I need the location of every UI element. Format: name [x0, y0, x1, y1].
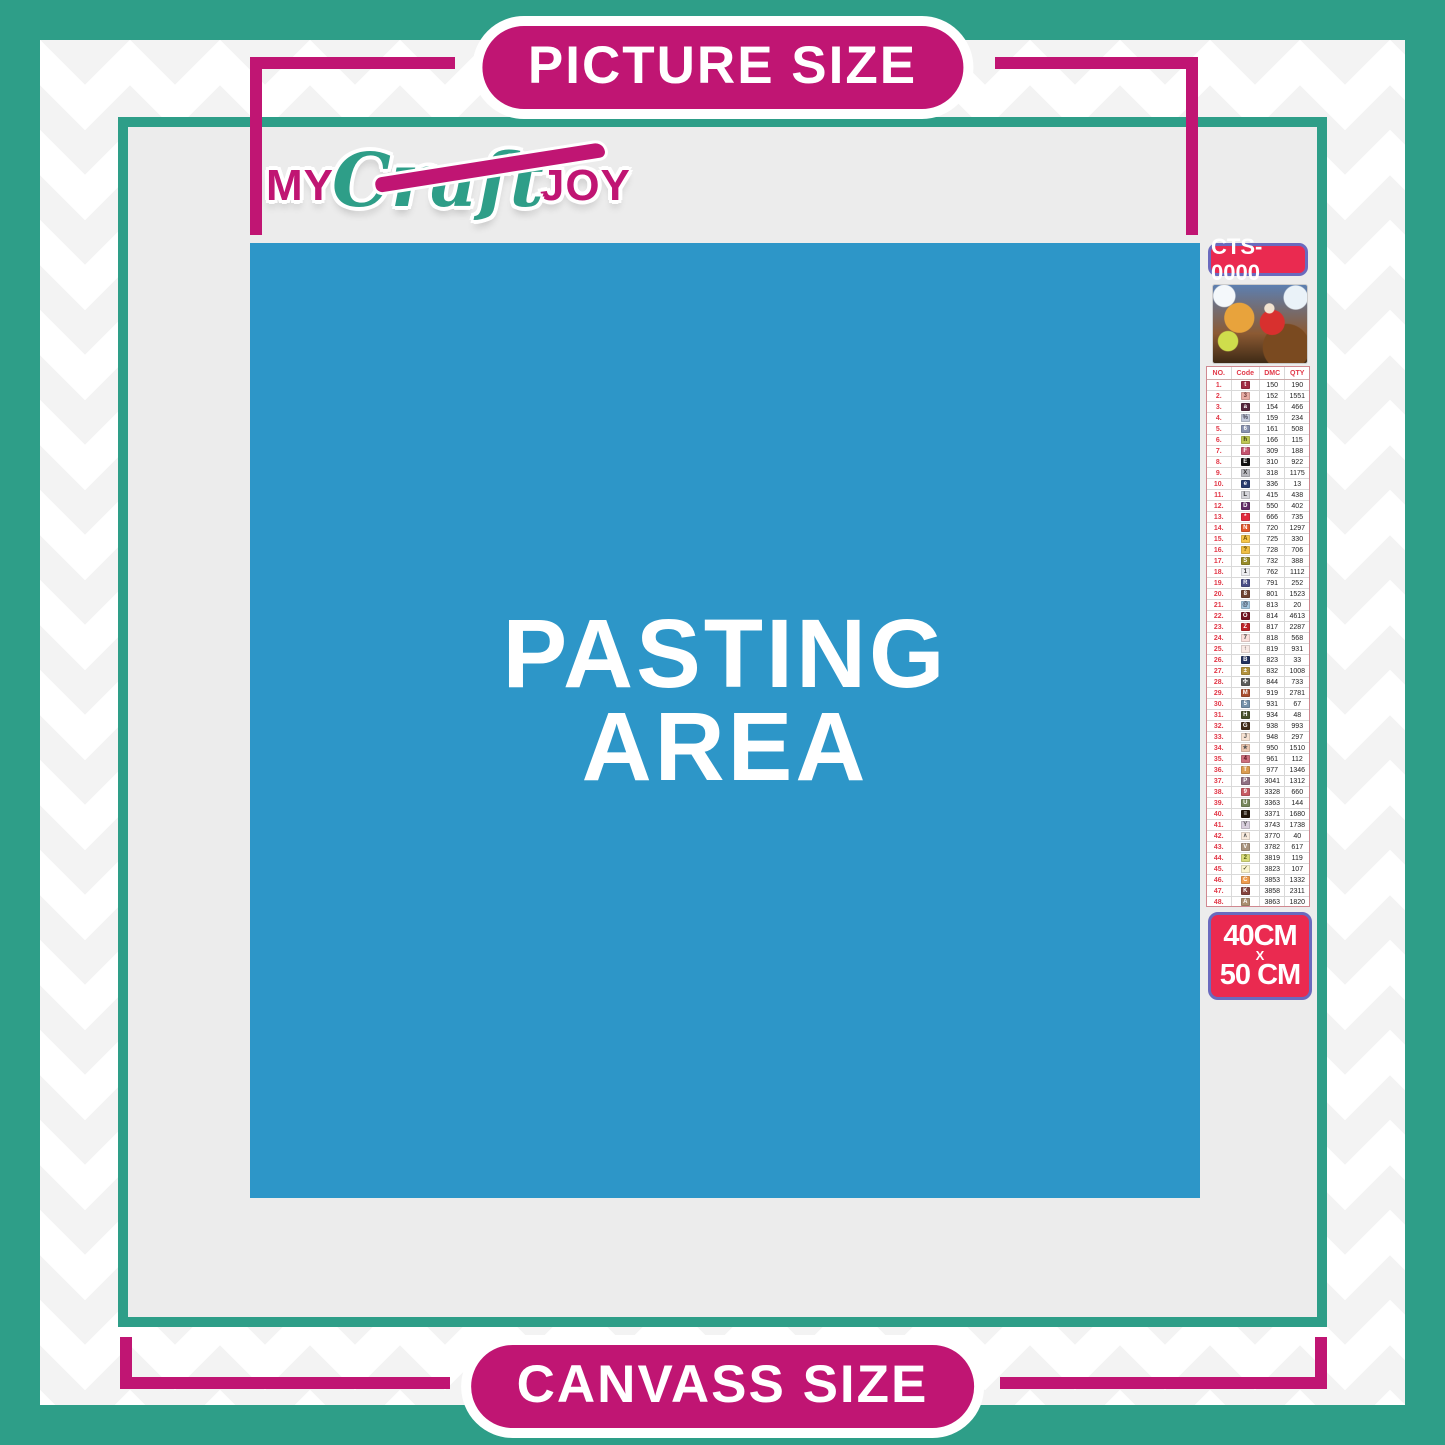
legend-cell-no: 38.: [1207, 787, 1232, 797]
color-chip: ?: [1241, 546, 1250, 554]
legend-header-code: Code: [1232, 367, 1260, 379]
legend-cell-code: %: [1232, 413, 1260, 423]
color-chip: O: [1241, 612, 1250, 620]
legend-cell-code: J: [1232, 732, 1260, 742]
legend-cell-code: ✣: [1232, 677, 1260, 687]
sku-text: CTS-0000: [1211, 234, 1305, 286]
legend-cell-no: 21.: [1207, 600, 1232, 610]
legend-row: 30. 5 931 67: [1207, 699, 1309, 710]
color-chip: U: [1241, 799, 1250, 807]
legend-header-no: NO.: [1207, 367, 1232, 379]
legend-cell-no: 37.: [1207, 776, 1232, 786]
legend-cell-dmc: 318: [1260, 468, 1286, 478]
color-chip: D: [1241, 502, 1250, 510]
legend-cell-code: 9: [1232, 787, 1260, 797]
color-chip: 3: [1241, 392, 1250, 400]
legend-cell-qty: 1112: [1285, 567, 1309, 577]
color-chip: G: [1241, 722, 1250, 730]
legend-cell-code: U: [1232, 798, 1260, 808]
color-chip: 4: [1241, 755, 1250, 763]
legend-cell-dmc: 152: [1260, 391, 1286, 401]
legend-cell-no: 34.: [1207, 743, 1232, 753]
legend-cell-code: ?: [1232, 545, 1260, 555]
legend-row: 43. V 3782 617: [1207, 842, 1309, 853]
legend-row: 41. Y 3743 1738: [1207, 820, 1309, 831]
legend-cell-code: N: [1232, 523, 1260, 533]
legend-cell-dmc: 720: [1260, 523, 1286, 533]
legend-row: 12. D 550 402: [1207, 501, 1309, 512]
legend-cell-qty: 1680: [1285, 809, 1309, 819]
legend-cell-code: R: [1232, 578, 1260, 588]
legend-cell-dmc: 666: [1260, 512, 1286, 522]
legend-cell-dmc: 725: [1260, 534, 1286, 544]
legend-cell-no: 20.: [1207, 589, 1232, 599]
legend-cell-dmc: 159: [1260, 413, 1286, 423]
legend-cell-qty: 119: [1285, 853, 1309, 863]
legend-row: 3. a 154 466: [1207, 402, 1309, 413]
legend-cell-qty: 33: [1285, 655, 1309, 665]
product-size-diagram: { "header": { "picture_size_label": "PIC…: [0, 0, 1445, 1445]
legend-cell-dmc: 3371: [1260, 809, 1286, 819]
legend-cell-code: 8: [1232, 589, 1260, 599]
color-chip: T: [1241, 766, 1250, 774]
color-chip: F: [1241, 447, 1250, 455]
canvass-size-pill: CANVASS SIZE: [461, 1335, 985, 1438]
color-chip: J: [1241, 733, 1250, 741]
legend-row: 5. 6 161 508: [1207, 424, 1309, 435]
legend-row: 47. K 3858 2311: [1207, 886, 1309, 897]
legend-row: 33. J 948 297: [1207, 732, 1309, 743]
legend-cell-code: K: [1232, 886, 1260, 896]
legend-table: NO. Code DMC QTY 1. t 150 190 2. 3 152 1…: [1206, 366, 1310, 907]
legend-row: 38. 9 3328 660: [1207, 787, 1309, 798]
legend-cell-qty: 297: [1285, 732, 1309, 742]
color-chip: E: [1241, 458, 1250, 466]
legend-cell-qty: 190: [1285, 380, 1309, 390]
legend-cell-no: 13.: [1207, 512, 1232, 522]
color-chip: ∧: [1241, 832, 1250, 840]
color-chip: 9: [1241, 788, 1250, 796]
legend-row: 48. A 3863 1820: [1207, 897, 1309, 907]
legend-row: 23. Z 817 2287: [1207, 622, 1309, 633]
legend-row: 31. H 934 48: [1207, 710, 1309, 721]
legend-row: 8. E 310 922: [1207, 457, 1309, 468]
legend-cell-dmc: 161: [1260, 424, 1286, 434]
canvass-size-bracket-right-stub: [1315, 1337, 1327, 1389]
legend-cell-dmc: 415: [1260, 490, 1286, 500]
legend-cell-code: O: [1232, 611, 1260, 621]
legend-cell-no: 32.: [1207, 721, 1232, 731]
legend-cell-dmc: 166: [1260, 435, 1286, 445]
legend-cell-code: L: [1232, 490, 1260, 500]
legend-row: 9. X 318 1175: [1207, 468, 1309, 479]
legend-cell-dmc: 336: [1260, 479, 1286, 489]
legend-cell-dmc: 931: [1260, 699, 1286, 709]
canvass-size-bracket-right-line: [1000, 1377, 1327, 1389]
legend-cell-no: 22.: [1207, 611, 1232, 621]
legend-cell-qty: 1175: [1285, 468, 1309, 478]
legend-row: 17. S 732 388: [1207, 556, 1309, 567]
color-chip: B: [1241, 656, 1250, 664]
legend-cell-no: 16.: [1207, 545, 1232, 555]
pasting-area: PASTING AREA: [250, 243, 1200, 1198]
legend-cell-no: 44.: [1207, 853, 1232, 863]
picture-size-label: PICTURE SIZE: [528, 36, 917, 95]
legend-cell-code: V: [1232, 842, 1260, 852]
legend-cell-code: B: [1232, 655, 1260, 665]
color-chip: A: [1241, 898, 1250, 906]
color-chip: R: [1241, 579, 1250, 587]
color-chip: C: [1241, 876, 1250, 884]
legend-cell-code: F: [1232, 446, 1260, 456]
color-chip: P: [1241, 777, 1250, 785]
legend-row: 18. 1 762 1112: [1207, 567, 1309, 578]
legend-cell-no: 48.: [1207, 897, 1232, 907]
legend-cell-qty: 4613: [1285, 611, 1309, 621]
legend-cell-no: 47.: [1207, 886, 1232, 896]
legend-cell-code: ✓: [1232, 864, 1260, 874]
color-chip: ±: [1241, 667, 1250, 675]
color-chip: 6: [1241, 425, 1250, 433]
legend-cell-code: X: [1232, 468, 1260, 478]
legend-cell-dmc: 154: [1260, 402, 1286, 412]
legend-cell-qty: 234: [1285, 413, 1309, 423]
legend-cell-no: 4.: [1207, 413, 1232, 423]
color-chip: h: [1241, 436, 1250, 444]
color-chip: L: [1241, 491, 1250, 499]
legend-cell-qty: 13: [1285, 479, 1309, 489]
legend-cell-no: 40.: [1207, 809, 1232, 819]
legend-row: 45. ✓ 3823 107: [1207, 864, 1309, 875]
legend-cell-dmc: 823: [1260, 655, 1286, 665]
legend-row: 32. G 938 993: [1207, 721, 1309, 732]
legend-cell-no: 6.: [1207, 435, 1232, 445]
legend-row: 24. 7 818 568: [1207, 633, 1309, 644]
legend-cell-code: G: [1232, 721, 1260, 731]
legend-cell-qty: 115: [1285, 435, 1309, 445]
legend-cell-qty: 112: [1285, 754, 1309, 764]
color-chip: a: [1241, 403, 1250, 411]
color-chip: M: [1241, 689, 1250, 697]
logo-word-my: MY: [266, 161, 334, 211]
legend-cell-no: 25.: [1207, 644, 1232, 654]
legend-row: 6. h 166 115: [1207, 435, 1309, 446]
legend-cell-no: 10.: [1207, 479, 1232, 489]
color-chip: ✓: [1241, 865, 1250, 873]
legend-cell-no: 43.: [1207, 842, 1232, 852]
color-chip: Y: [1241, 821, 1250, 829]
legend-cell-qty: 1008: [1285, 666, 1309, 676]
color-chip: X: [1241, 469, 1250, 477]
color-chip: *: [1241, 513, 1250, 521]
legend-cell-dmc: 150: [1260, 380, 1286, 390]
legend-cell-no: 35.: [1207, 754, 1232, 764]
legend-cell-no: 26.: [1207, 655, 1232, 665]
legend-cell-dmc: 732: [1260, 556, 1286, 566]
legend-cell-dmc: 813: [1260, 600, 1286, 610]
legend-cell-qty: 993: [1285, 721, 1309, 731]
legend-row: 25. ↑ 819 931: [1207, 644, 1309, 655]
picture-size-bracket-left-stub: [250, 57, 262, 235]
legend-cell-no: 14.: [1207, 523, 1232, 533]
legend-cell-qty: 2781: [1285, 688, 1309, 698]
legend-cell-dmc: 919: [1260, 688, 1286, 698]
legend-row: 36. T 977 1346: [1207, 765, 1309, 776]
size-width-label: 40CM: [1223, 923, 1296, 950]
color-chip: 8: [1241, 590, 1250, 598]
legend-cell-no: 24.: [1207, 633, 1232, 643]
legend-cell-no: 29.: [1207, 688, 1232, 698]
legend-cell-dmc: 817: [1260, 622, 1286, 632]
legend-cell-qty: 388: [1285, 556, 1309, 566]
canvass-size-bracket-left-line: [120, 1377, 450, 1389]
legend-cell-code: 7: [1232, 633, 1260, 643]
legend-cell-qty: 107: [1285, 864, 1309, 874]
legend-cell-qty: 330: [1285, 534, 1309, 544]
legend-cell-no: 3.: [1207, 402, 1232, 412]
legend-cell-qty: 1551: [1285, 391, 1309, 401]
legend-cell-no: 42.: [1207, 831, 1232, 841]
legend-cell-dmc: 550: [1260, 501, 1286, 511]
legend-cell-qty: 252: [1285, 578, 1309, 588]
legend-cell-no: 36.: [1207, 765, 1232, 775]
legend-cell-code: Z: [1232, 622, 1260, 632]
picture-size-bracket-right-stub: [1186, 57, 1198, 235]
color-chip: @: [1241, 601, 1250, 609]
legend-rows: 1. t 150 190 2. 3 152 1551 3. a 154 466 …: [1207, 380, 1309, 907]
legend-cell-qty: 402: [1285, 501, 1309, 511]
legend-cell-code: ★: [1232, 743, 1260, 753]
legend-row: 46. C 3853 1332: [1207, 875, 1309, 886]
legend-cell-dmc: 832: [1260, 666, 1286, 676]
legend-cell-qty: 1312: [1285, 776, 1309, 786]
legend-cell-no: 28.: [1207, 677, 1232, 687]
color-chip: 5: [1241, 700, 1250, 708]
legend-row: 21. @ 813 20: [1207, 600, 1309, 611]
legend-cell-no: 12.: [1207, 501, 1232, 511]
legend-cell-code: 6: [1232, 424, 1260, 434]
legend-header-row: NO. Code DMC QTY: [1207, 367, 1309, 380]
legend-cell-code: @: [1232, 600, 1260, 610]
legend-cell-code: P: [1232, 776, 1260, 786]
kit-thumbnail-christmas-santa-sleigh: [1213, 285, 1307, 363]
legend-row: 34. ★ 950 1510: [1207, 743, 1309, 754]
legend-cell-qty: 568: [1285, 633, 1309, 643]
legend-cell-code: ≡: [1232, 809, 1260, 819]
legend-cell-no: 18.: [1207, 567, 1232, 577]
legend-cell-no: 5.: [1207, 424, 1232, 434]
legend-row: 26. B 823 33: [1207, 655, 1309, 666]
legend-cell-code: a: [1232, 402, 1260, 412]
legend-cell-code: A: [1232, 897, 1260, 907]
legend-row: 7. F 309 188: [1207, 446, 1309, 457]
legend-cell-dmc: 801: [1260, 589, 1286, 599]
legend-cell-dmc: 819: [1260, 644, 1286, 654]
picture-size-pill: PICTURE SIZE: [472, 16, 973, 119]
legend-row: 39. U 3363 144: [1207, 798, 1309, 809]
color-chip: ≡: [1241, 810, 1250, 818]
legend-row: 37. P 3041 1312: [1207, 776, 1309, 787]
legend-cell-qty: 48: [1285, 710, 1309, 720]
legend-cell-code: 1: [1232, 567, 1260, 577]
legend-cell-dmc: 3328: [1260, 787, 1286, 797]
legend-row: 16. ? 728 706: [1207, 545, 1309, 556]
legend-cell-qty: 2287: [1285, 622, 1309, 632]
legend-cell-code: 2: [1232, 853, 1260, 863]
picture-size-bracket-right-line: [995, 57, 1198, 69]
color-chip: ↑: [1241, 645, 1250, 653]
legend-cell-dmc: 934: [1260, 710, 1286, 720]
legend-cell-no: 39.: [1207, 798, 1232, 808]
legend-cell-dmc: 3770: [1260, 831, 1286, 841]
brand-logo: MY Craft JOY: [266, 146, 631, 219]
legend-cell-qty: 1510: [1285, 743, 1309, 753]
size-height-label: 50 CM: [1220, 962, 1300, 989]
legend-header-qty: QTY: [1285, 367, 1309, 379]
legend-cell-code: A: [1232, 534, 1260, 544]
legend-cell-no: 23.: [1207, 622, 1232, 632]
legend-cell-no: 45.: [1207, 864, 1232, 874]
legend-cell-dmc: 814: [1260, 611, 1286, 621]
legend-cell-dmc: 948: [1260, 732, 1286, 742]
legend-cell-no: 27.: [1207, 666, 1232, 676]
legend-cell-qty: 931: [1285, 644, 1309, 654]
legend-cell-qty: 1346: [1285, 765, 1309, 775]
legend-cell-no: 17.: [1207, 556, 1232, 566]
legend-cell-dmc: 3823: [1260, 864, 1286, 874]
legend-cell-qty: 660: [1285, 787, 1309, 797]
legend-cell-dmc: 977: [1260, 765, 1286, 775]
legend-cell-qty: 20: [1285, 600, 1309, 610]
legend-cell-dmc: 844: [1260, 677, 1286, 687]
legend-cell-dmc: 791: [1260, 578, 1286, 588]
color-chip: 7: [1241, 634, 1250, 642]
legend-cell-qty: 40: [1285, 831, 1309, 841]
legend-cell-no: 46.: [1207, 875, 1232, 885]
legend-cell-qty: 922: [1285, 457, 1309, 467]
legend-cell-dmc: 728: [1260, 545, 1286, 555]
color-chip: N: [1241, 524, 1250, 532]
legend-cell-dmc: 762: [1260, 567, 1286, 577]
legend-cell-code: 5: [1232, 699, 1260, 709]
legend-cell-qty: 188: [1285, 446, 1309, 456]
legend-cell-dmc: 3819: [1260, 853, 1286, 863]
legend-row: 44. 2 3819 119: [1207, 853, 1309, 864]
legend-row: 15. A 725 330: [1207, 534, 1309, 545]
legend-cell-dmc: 309: [1260, 446, 1286, 456]
legend-row: 14. N 720 1297: [1207, 523, 1309, 534]
legend-cell-no: 8.: [1207, 457, 1232, 467]
legend-cell-dmc: 938: [1260, 721, 1286, 731]
legend-cell-qty: 2311: [1285, 886, 1309, 896]
legend-cell-code: E: [1232, 457, 1260, 467]
legend-cell-dmc: 3858: [1260, 886, 1286, 896]
legend-cell-dmc: 310: [1260, 457, 1286, 467]
legend-cell-dmc: 3743: [1260, 820, 1286, 830]
legend-cell-no: 7.: [1207, 446, 1232, 456]
legend-row: 27. ± 832 1008: [1207, 666, 1309, 677]
legend-cell-dmc: 3363: [1260, 798, 1286, 808]
legend-row: 40. ≡ 3371 1680: [1207, 809, 1309, 820]
legend-row: 10. e 336 13: [1207, 479, 1309, 490]
legend-cell-code: T: [1232, 765, 1260, 775]
canvass-size-label: CANVASS SIZE: [517, 1355, 929, 1414]
color-chip: Z: [1241, 623, 1250, 631]
legend-cell-code: e: [1232, 479, 1260, 489]
legend-cell-qty: 144: [1285, 798, 1309, 808]
color-chip: V: [1241, 843, 1250, 851]
legend-header-dmc: DMC: [1260, 367, 1286, 379]
kit-size-badge: 40CM X 50 CM: [1208, 912, 1312, 1000]
legend-cell-no: 41.: [1207, 820, 1232, 830]
legend-cell-code: Y: [1232, 820, 1260, 830]
legend-cell-dmc: 3853: [1260, 875, 1286, 885]
legend-cell-code: *: [1232, 512, 1260, 522]
legend-cell-dmc: 950: [1260, 743, 1286, 753]
legend-cell-code: h: [1232, 435, 1260, 445]
legend-cell-code: H: [1232, 710, 1260, 720]
legend-cell-code: ∧: [1232, 831, 1260, 841]
color-chip: t: [1241, 381, 1250, 389]
legend-row: 13. * 666 735: [1207, 512, 1309, 523]
legend-row: 29. M 919 2781: [1207, 688, 1309, 699]
legend-cell-code: ↑: [1232, 644, 1260, 654]
legend-cell-code: S: [1232, 556, 1260, 566]
legend-row: 2. 3 152 1551: [1207, 391, 1309, 402]
pasting-area-line2: AREA: [503, 701, 948, 793]
legend-cell-code: 3: [1232, 391, 1260, 401]
legend-cell-qty: 706: [1285, 545, 1309, 555]
legend-row: 20. 8 801 1523: [1207, 589, 1309, 600]
legend-cell-code: ±: [1232, 666, 1260, 676]
sku-badge: CTS-0000: [1208, 243, 1308, 276]
legend-row: 22. O 814 4613: [1207, 611, 1309, 622]
legend-cell-no: 30.: [1207, 699, 1232, 709]
legend-cell-no: 31.: [1207, 710, 1232, 720]
legend-cell-dmc: 818: [1260, 633, 1286, 643]
legend-cell-qty: 617: [1285, 842, 1309, 852]
legend-cell-no: 33.: [1207, 732, 1232, 742]
legend-cell-code: D: [1232, 501, 1260, 511]
color-chip: S: [1241, 557, 1250, 565]
color-chip: ★: [1241, 744, 1250, 752]
legend-cell-qty: 1738: [1285, 820, 1309, 830]
legend-row: 35. 4 961 112: [1207, 754, 1309, 765]
legend-row: 4. % 159 234: [1207, 413, 1309, 424]
legend-cell-code: C: [1232, 875, 1260, 885]
legend-cell-qty: 508: [1285, 424, 1309, 434]
legend-cell-code: t: [1232, 380, 1260, 390]
canvass-size-bracket-left-stub: [120, 1337, 132, 1389]
legend-row: 19. R 791 252: [1207, 578, 1309, 589]
legend-cell-no: 11.: [1207, 490, 1232, 500]
legend-cell-code: 4: [1232, 754, 1260, 764]
legend-cell-no: 2.: [1207, 391, 1232, 401]
legend-cell-dmc: 3782: [1260, 842, 1286, 852]
pasting-area-label: PASTING AREA: [503, 608, 948, 792]
color-chip: H: [1241, 711, 1250, 719]
color-chip: ✣: [1241, 678, 1250, 686]
legend-cell-qty: 466: [1285, 402, 1309, 412]
legend-cell-qty: 1332: [1285, 875, 1309, 885]
legend-row: 28. ✣ 844 733: [1207, 677, 1309, 688]
legend-cell-no: 1.: [1207, 380, 1232, 390]
color-chip: 2: [1241, 854, 1250, 862]
legend-cell-no: 9.: [1207, 468, 1232, 478]
legend-cell-qty: 67: [1285, 699, 1309, 709]
legend-row: 42. ∧ 3770 40: [1207, 831, 1309, 842]
pasting-area-line1: PASTING: [503, 608, 948, 700]
